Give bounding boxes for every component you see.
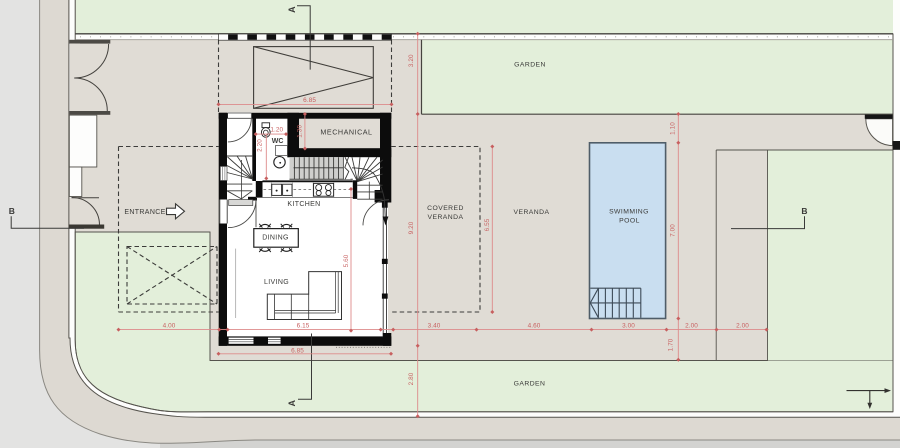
svg-text:A: A	[287, 6, 297, 13]
svg-text:WC: WC	[272, 138, 284, 145]
svg-text:2.00: 2.00	[685, 322, 698, 329]
svg-text:2.20: 2.20	[257, 139, 264, 152]
svg-text:4.60: 4.60	[528, 322, 541, 329]
svg-text:3.00: 3.00	[622, 322, 635, 329]
svg-text:A: A	[287, 399, 297, 406]
svg-text:1.70: 1.70	[668, 338, 675, 351]
svg-text:GARDEN: GARDEN	[514, 62, 546, 69]
svg-text:3.40: 3.40	[428, 322, 441, 329]
svg-text:2.00: 2.00	[736, 322, 749, 329]
svg-text:9.20: 9.20	[408, 221, 415, 234]
svg-text:VERANDA: VERANDA	[513, 209, 549, 216]
svg-text:B: B	[9, 206, 15, 216]
svg-text:B: B	[801, 206, 807, 216]
svg-text:LIVING: LIVING	[264, 279, 289, 286]
svg-text:VERANDA: VERANDA	[427, 214, 463, 221]
svg-text:POOL: POOL	[619, 217, 640, 224]
svg-text:4.00: 4.00	[163, 322, 176, 329]
svg-text:DINING: DINING	[262, 235, 289, 242]
svg-text:1.10: 1.10	[670, 122, 677, 135]
svg-text:KITCHEN: KITCHEN	[287, 201, 320, 208]
svg-text:1.20: 1.20	[270, 127, 283, 134]
svg-text:1.30: 1.30	[297, 125, 304, 138]
svg-text:6.85: 6.85	[291, 347, 304, 354]
svg-text:5.60: 5.60	[343, 254, 350, 267]
svg-text:2.80: 2.80	[408, 372, 415, 385]
svg-text:SWIMMING: SWIMMING	[609, 208, 649, 215]
svg-text:6.55: 6.55	[484, 218, 491, 231]
svg-text:6.85: 6.85	[303, 97, 316, 104]
svg-text:GARDEN: GARDEN	[514, 381, 546, 388]
svg-text:ENTRANCE: ENTRANCE	[124, 209, 165, 216]
svg-text:6.15: 6.15	[297, 322, 310, 329]
svg-text:7.00: 7.00	[670, 224, 677, 237]
svg-text:MECHANICAL: MECHANICAL	[320, 127, 372, 136]
svg-text:COVERED: COVERED	[427, 205, 464, 212]
svg-text:3.20: 3.20	[408, 54, 415, 67]
